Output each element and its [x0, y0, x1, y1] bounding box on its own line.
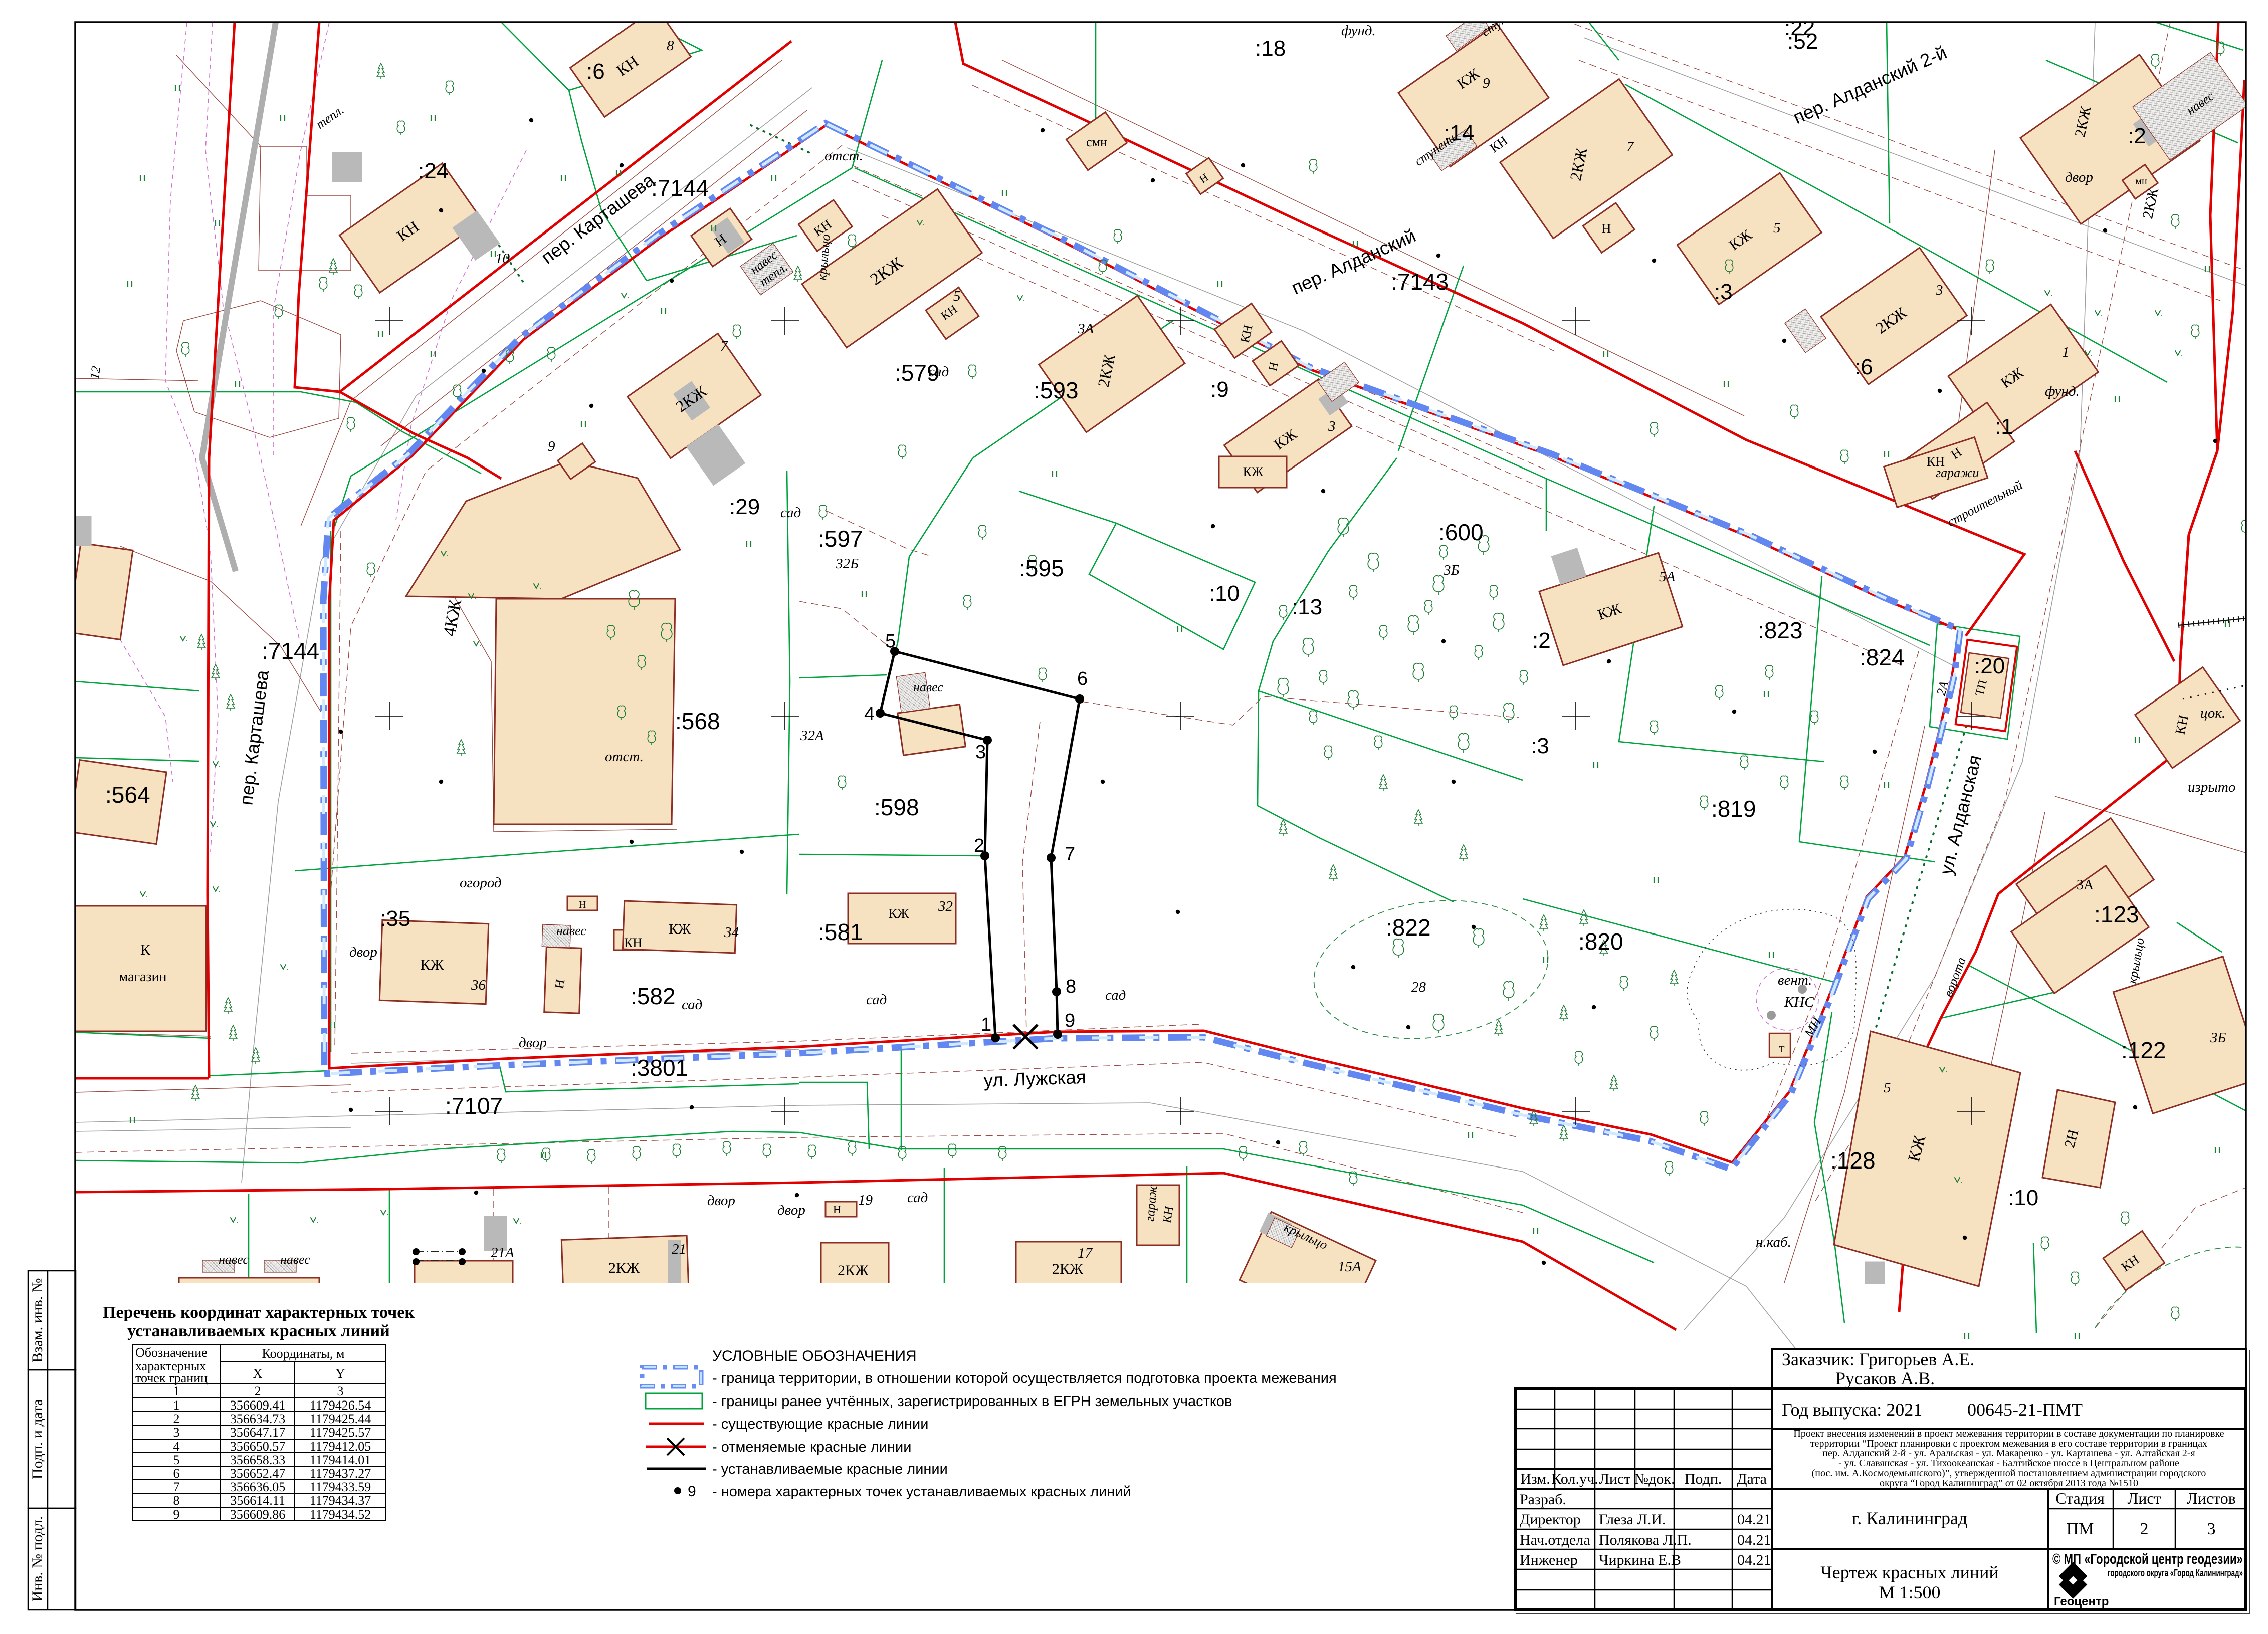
svg-text:04.21: 04.21 [1737, 1511, 1771, 1528]
svg-text::18: :18 [1255, 36, 1286, 61]
svg-text:1: 1 [173, 1398, 180, 1413]
svg-text::593: :593 [1034, 377, 1079, 403]
svg-text:фунд.: фунд. [2045, 383, 2080, 399]
svg-text::7107: :7107 [445, 1093, 503, 1119]
svg-text::122: :122 [2121, 1037, 2166, 1063]
svg-text::3: :3 [1531, 734, 1549, 758]
svg-text:34: 34 [724, 924, 739, 941]
svg-text:отст.: отст. [824, 148, 863, 164]
svg-text::568: :568 [675, 708, 720, 734]
svg-text:1: 1 [2062, 344, 2070, 360]
svg-text::823: :823 [1758, 617, 1803, 643]
svg-text:мн: мн [2135, 176, 2147, 187]
svg-text:2КЖ: 2КЖ [1052, 1261, 1083, 1277]
svg-text:Y: Y [336, 1366, 345, 1381]
svg-text:двор: двор [519, 1035, 547, 1051]
svg-text:3Б: 3Б [1443, 562, 1460, 578]
svg-text::7144: :7144 [651, 175, 709, 201]
svg-text:356634.73: 356634.73 [230, 1412, 286, 1426]
svg-text:2: 2 [173, 1412, 180, 1426]
svg-text:Директор: Директор [1520, 1511, 1581, 1528]
svg-text:ПМ: ПМ [2067, 1520, 2094, 1538]
svg-text:9: 9 [548, 438, 555, 454]
svg-text:- устанавливаемые красные лини: - устанавливаемые красные линии [712, 1461, 948, 1477]
svg-text:навес: навес [913, 680, 943, 694]
svg-text::2: :2 [1532, 628, 1551, 653]
svg-text:сад: сад [866, 992, 887, 1008]
svg-text:магазин: магазин [119, 969, 167, 985]
svg-text:1179434.52: 1179434.52 [310, 1507, 371, 1522]
svg-text:Чертеж красных линий: Чертеж красных линий [1820, 1562, 1998, 1582]
svg-text:- номера характерных точек уст: - номера характерных точек устанавливаем… [712, 1484, 1131, 1500]
svg-text:Н: Н [1602, 221, 1611, 236]
svg-text:356609.41: 356609.41 [230, 1398, 286, 1413]
svg-text:8: 8 [667, 38, 674, 54]
svg-text:5: 5 [173, 1453, 180, 1467]
svg-text:навес: навес [556, 923, 586, 938]
svg-text:К: К [140, 942, 151, 958]
svg-text:сад: сад [682, 997, 702, 1013]
svg-text:1179412.05: 1179412.05 [310, 1439, 371, 1454]
svg-text:Взам. инв. №: Взам. инв. № [29, 1278, 46, 1362]
svg-text:8: 8 [173, 1493, 180, 1508]
svg-text::52: :52 [1787, 29, 1818, 54]
svg-text:Год выпуска: 2021: Год выпуска: 2021 [1782, 1399, 1922, 1420]
svg-text:отст.: отст. [605, 749, 644, 765]
svg-text:7: 7 [1065, 844, 1075, 865]
svg-text:© МП «Городской центр геодезии: © МП «Городской центр геодезии» [2052, 1551, 2243, 1567]
svg-text:21А: 21А [491, 1245, 514, 1261]
svg-text:2: 2 [2140, 1520, 2149, 1538]
svg-text:1179434.37: 1179434.37 [310, 1493, 371, 1508]
svg-text:фунд.: фунд. [1341, 23, 1376, 39]
svg-text::819: :819 [1711, 796, 1756, 822]
svg-text:двор: двор [2065, 169, 2093, 185]
svg-text:7: 7 [173, 1480, 180, 1494]
svg-text:пер. Алданский 2-й - ул. Араль: пер. Алданский 2-й - ул. Аральская - ул.… [1822, 1448, 2195, 1459]
svg-text:5: 5 [1773, 220, 1781, 236]
svg-text::128: :128 [1830, 1147, 1876, 1174]
svg-text:04.21: 04.21 [1737, 1532, 1771, 1548]
svg-text::581: :581 [818, 919, 863, 945]
svg-text:изрыто: изрыто [2188, 779, 2235, 795]
svg-text:3: 3 [337, 1384, 344, 1398]
svg-text:№док.: №док. [1634, 1471, 1675, 1487]
svg-text::6: :6 [1854, 355, 1873, 379]
svg-text:огород: огород [460, 875, 502, 891]
svg-text:округа “Город Калининград” от: округа “Город Калининград” от 02 октября… [1880, 1478, 2138, 1489]
svg-text::13: :13 [1292, 595, 1322, 619]
svg-text::820: :820 [1578, 928, 1623, 955]
svg-text:КЖ: КЖ [669, 922, 691, 938]
svg-text:1: 1 [173, 1384, 180, 1398]
svg-text::2: :2 [2128, 124, 2146, 148]
svg-text::10: :10 [2008, 1186, 2038, 1210]
svg-text::35: :35 [380, 906, 410, 931]
svg-text:ЗБ: ЗБ [2210, 1030, 2226, 1046]
svg-text:1: 1 [981, 1014, 991, 1035]
svg-text:Кол.уч.: Кол.уч. [1551, 1471, 1598, 1487]
svg-text::9: :9 [1210, 377, 1229, 402]
svg-text:Стадия: Стадия [2055, 1489, 2105, 1507]
svg-text:X: X [253, 1366, 263, 1381]
svg-text:4: 4 [864, 704, 875, 725]
svg-text:356636.05: 356636.05 [230, 1480, 286, 1494]
svg-text:навес: навес [219, 1252, 249, 1267]
svg-text:2: 2 [974, 835, 984, 856]
svg-text::29: :29 [729, 495, 760, 519]
svg-text:7: 7 [1626, 139, 1634, 155]
svg-text:356652.47: 356652.47 [230, 1466, 286, 1481]
svg-text:КН: КН [1927, 454, 1945, 469]
svg-text:Т: Т [1779, 1044, 1785, 1054]
svg-text:3: 3 [1328, 418, 1336, 434]
svg-text:5: 5 [1884, 1080, 1891, 1096]
svg-text::123: :123 [2094, 901, 2139, 927]
svg-text:32: 32 [938, 898, 953, 914]
svg-text:двор: двор [349, 944, 377, 960]
svg-text:1179425.44: 1179425.44 [310, 1412, 371, 1426]
svg-text:Заказчик: Григорьев А.Е.: Заказчик: Григорьев А.Е. [1782, 1349, 1974, 1369]
svg-text:32А: 32А [800, 728, 824, 744]
svg-text:1179425.57: 1179425.57 [310, 1425, 371, 1440]
svg-text:КН: КН [624, 936, 642, 950]
svg-text:1179433.59: 1179433.59 [310, 1480, 371, 1494]
svg-text:Чиркина Е.В: Чиркина Е.В [1599, 1552, 1681, 1568]
svg-text:12: 12 [87, 365, 103, 380]
svg-text:Геоцентр: Геоцентр [2054, 1595, 2109, 1608]
svg-text::1: :1 [1995, 414, 2013, 439]
svg-text:3: 3 [975, 742, 986, 763]
svg-text:7: 7 [720, 338, 728, 354]
svg-text::6: :6 [586, 59, 605, 84]
svg-text:2КЖ: 2КЖ [608, 1260, 640, 1276]
svg-text:- граница территории, в отноше: - граница территории, в отношении которо… [712, 1370, 1337, 1386]
svg-text:КЖ: КЖ [421, 957, 444, 973]
svg-text:5А: 5А [1659, 569, 1676, 585]
svg-text:3: 3 [1935, 282, 1943, 298]
svg-text:- существующие красные линии: - существующие красные линии [712, 1416, 928, 1432]
svg-text:смн: смн [1086, 135, 1107, 149]
svg-text:Русаков А.В.: Русаков А.В. [1835, 1368, 1935, 1388]
svg-text:Лист: Лист [2127, 1489, 2161, 1507]
svg-text:3: 3 [2207, 1520, 2216, 1538]
svg-text:сад: сад [1105, 987, 1126, 1003]
svg-text:сад: сад [907, 1190, 928, 1206]
svg-text:17: 17 [1078, 1245, 1093, 1261]
svg-text:9: 9 [173, 1507, 180, 1522]
svg-text::564: :564 [105, 782, 150, 808]
svg-text:Листов: Листов [2187, 1489, 2236, 1507]
svg-text:356658.33: 356658.33 [230, 1453, 286, 1467]
svg-text:10: 10 [495, 251, 510, 267]
svg-text:04.21: 04.21 [1737, 1552, 1771, 1568]
svg-text:36: 36 [471, 977, 486, 993]
svg-text:9: 9 [1483, 75, 1490, 91]
svg-text::24: :24 [418, 159, 449, 183]
svg-text:9: 9 [1065, 1010, 1075, 1031]
svg-text:15А: 15А [1338, 1259, 1361, 1275]
svg-text:Инв. № подл.: Инв. № подл. [29, 1516, 46, 1602]
svg-text:Глеза Л.И.: Глеза Л.И. [1599, 1511, 1666, 1528]
svg-text:1179437.27: 1179437.27 [310, 1466, 371, 1481]
svg-text:1179414.01: 1179414.01 [310, 1453, 371, 1467]
svg-text:3А: 3А [2077, 877, 2094, 893]
svg-text:4: 4 [173, 1439, 180, 1454]
svg-text:городского округа «Город Калин: городского округа «Город Калининград» [2108, 1568, 2243, 1579]
svg-text:Подп.: Подп. [1685, 1471, 1722, 1487]
svg-text:КНС: КНС [1784, 994, 1814, 1010]
svg-text::10: :10 [1209, 581, 1240, 606]
svg-text:- границы ранее учтённых, заре: - границы ранее учтённых, зарегистрирова… [712, 1393, 1232, 1410]
svg-text:УСЛОВНЫЕ ОБОЗНАЧЕНИЯ: УСЛОВНЫЕ ОБОЗНАЧЕНИЯ [712, 1348, 917, 1364]
svg-text:5: 5 [953, 288, 961, 304]
svg-text:Координаты, м: Координаты, м [262, 1346, 345, 1361]
svg-text:- ул. Славянская - ул. Тихооке: - ул. Славянская - ул. Тихоокеанская - Б… [1838, 1458, 2179, 1469]
svg-text:9: 9 [688, 1483, 696, 1500]
svg-text:сад: сад [928, 364, 949, 380]
svg-text:Н: Н [579, 899, 586, 910]
svg-text:6: 6 [173, 1466, 180, 1481]
svg-text:00645-21-ПМТ: 00645-21-ПМТ [1967, 1399, 2083, 1420]
svg-text:Н: Н [833, 1203, 841, 1216]
svg-text:Перечень координат характерных: Перечень координат характерных точек [103, 1303, 415, 1322]
svg-text:- отменяемые красные линии: - отменяемые красные линии [712, 1439, 911, 1455]
svg-text:Проект внесения изменений в пр: Проект внесения изменений в проект межев… [1793, 1428, 2224, 1439]
svg-text:навес: навес [280, 1252, 310, 1267]
svg-text::597: :597 [818, 526, 863, 552]
svg-text:2: 2 [255, 1384, 261, 1398]
svg-text:1179426.54: 1179426.54 [310, 1398, 371, 1413]
svg-text::3: :3 [1714, 280, 1733, 304]
svg-text::3801: :3801 [631, 1055, 688, 1081]
svg-text::20: :20 [1974, 654, 2005, 678]
svg-text:Изм.: Изм. [1520, 1471, 1550, 1487]
svg-text::822: :822 [1386, 914, 1431, 941]
svg-text:Обозначение: Обозначение [135, 1345, 208, 1360]
svg-text::595: :595 [1019, 555, 1064, 581]
svg-text:вент.: вент. [1778, 972, 1812, 988]
svg-text:3А: 3А [1077, 321, 1094, 337]
svg-text:КЖ: КЖ [889, 906, 909, 921]
svg-text:28: 28 [1411, 979, 1426, 995]
svg-text:ул. Лужская: ул. Лужская [983, 1067, 1087, 1091]
svg-text:21: 21 [672, 1241, 686, 1257]
svg-text:Разраб.: Разраб. [1520, 1491, 1566, 1508]
svg-text:Инженер: Инженер [1520, 1552, 1578, 1568]
svg-text::824: :824 [1860, 644, 1905, 670]
svg-text:(пос. им. А.Космодемьянского)”: (пос. им. А.Космодемьянского)”, утвержде… [1812, 1468, 2206, 1479]
svg-text:двор: двор [707, 1193, 735, 1209]
svg-text:точек границ: точек границ [135, 1371, 208, 1385]
svg-text::598: :598 [874, 794, 919, 820]
svg-text:сад: сад [780, 505, 801, 521]
svg-text::7144: :7144 [262, 638, 319, 664]
svg-text:г. Калининград: г. Калининград [1852, 1508, 1968, 1528]
svg-text:5: 5 [885, 631, 896, 652]
svg-text:Лист: Лист [1599, 1471, 1631, 1487]
svg-text:6: 6 [1077, 668, 1088, 689]
svg-text:цок.: цок. [2200, 705, 2225, 721]
svg-text:н.каб.: н.каб. [1756, 1234, 1791, 1250]
svg-text:Нач.отдела: Нач.отдела [1520, 1532, 1590, 1548]
svg-text::7143: :7143 [1391, 269, 1449, 295]
svg-text:32Б: 32Б [835, 556, 859, 572]
svg-text:19: 19 [858, 1192, 873, 1208]
svg-text:8: 8 [1066, 976, 1076, 997]
svg-text:Полякова Л.П.: Полякова Л.П. [1599, 1532, 1692, 1548]
svg-text:КЖ: КЖ [1243, 464, 1264, 479]
svg-text:3: 3 [173, 1425, 180, 1440]
svg-text:2КЖ: 2КЖ [838, 1262, 869, 1279]
svg-text:356614.11: 356614.11 [230, 1493, 285, 1508]
svg-text:356647.17: 356647.17 [230, 1425, 286, 1440]
svg-text:двор: двор [777, 1202, 805, 1218]
svg-text:Подп. и дата: Подп. и дата [29, 1399, 46, 1479]
svg-text::600: :600 [1438, 519, 1484, 545]
svg-text:устанавливаемых красных линий: устанавливаемых красных линий [127, 1322, 390, 1340]
svg-text:М 1:500: М 1:500 [1879, 1582, 1940, 1602]
svg-text:356650.57: 356650.57 [230, 1439, 286, 1454]
svg-text::582: :582 [631, 983, 676, 1009]
svg-text:Дата: Дата [1737, 1471, 1767, 1487]
svg-text:356609.86: 356609.86 [230, 1507, 286, 1522]
